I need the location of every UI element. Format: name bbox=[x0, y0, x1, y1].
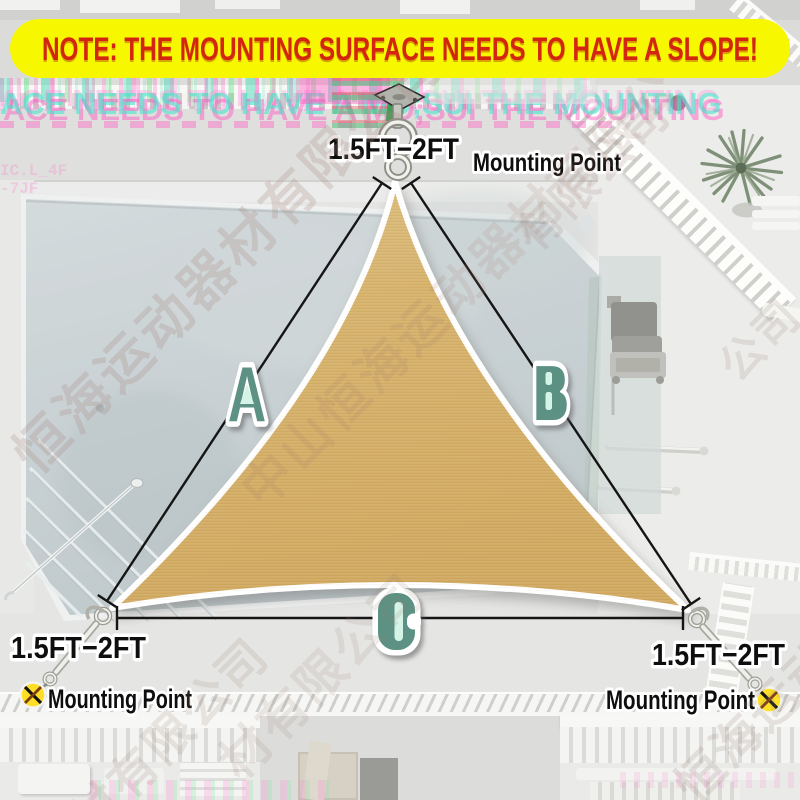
svg-text:1.5FT−2FT: 1.5FT−2FT bbox=[11, 630, 146, 665]
svg-text:NOTE: THE MOUNTING SURFACE NEE: NOTE: THE MOUNTING SURFACE NEEDS TO HAVE… bbox=[42, 31, 758, 67]
